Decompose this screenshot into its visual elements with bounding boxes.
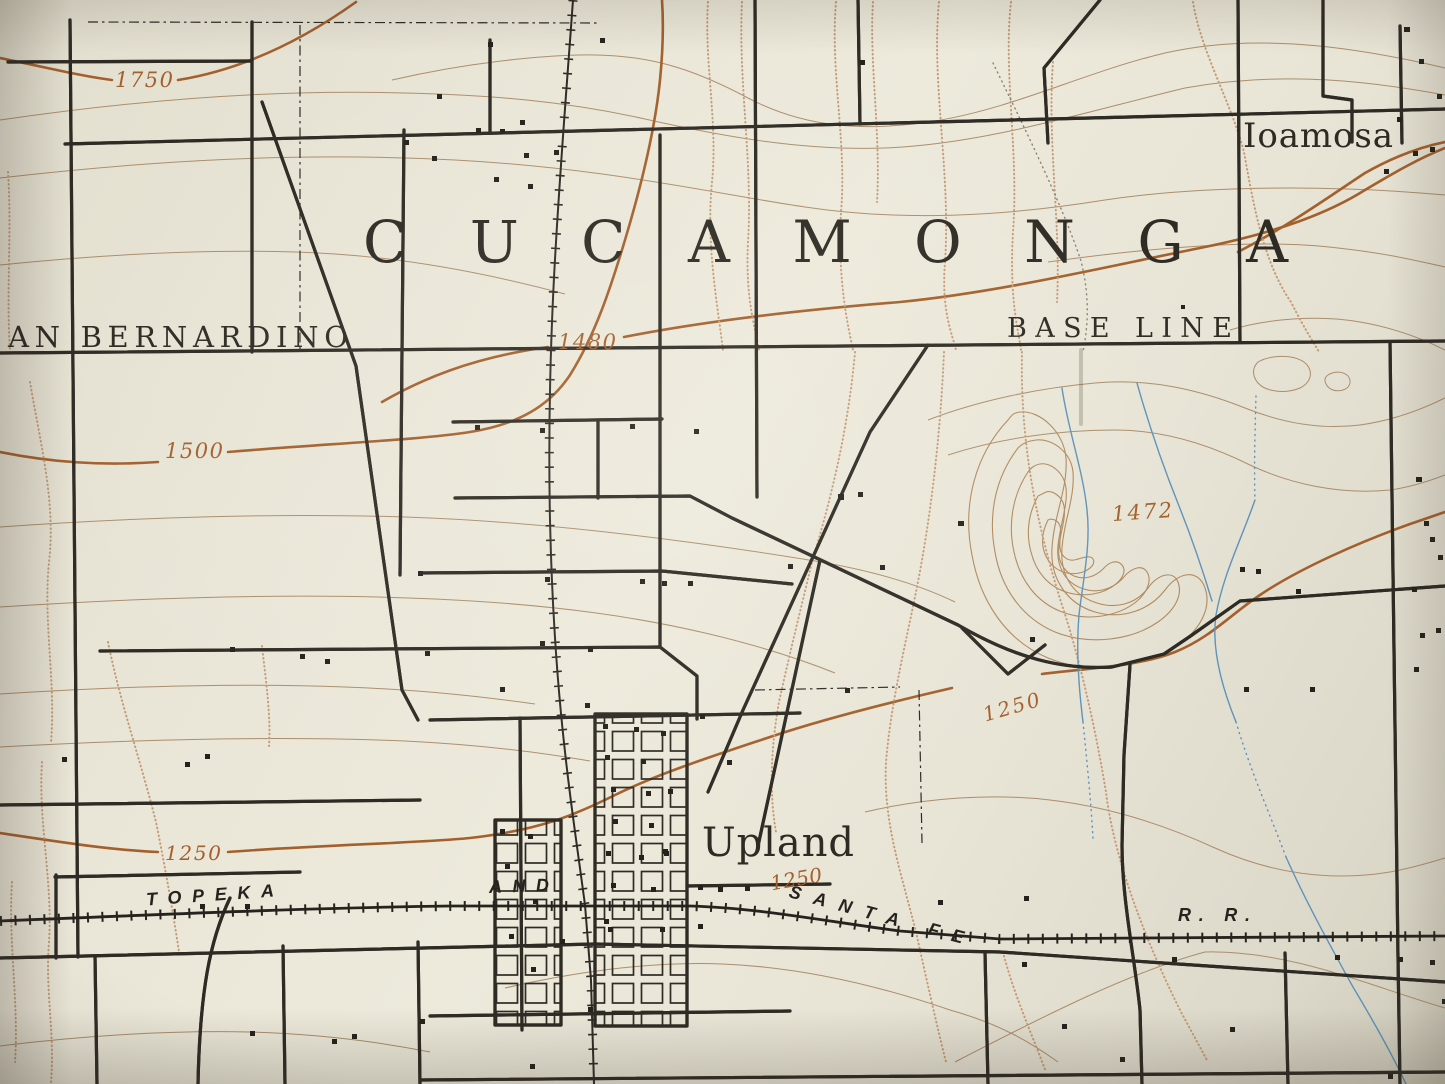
place-label-ioamosa: Ioamosa: [1243, 116, 1393, 156]
place-label-upland: Upland: [702, 820, 854, 866]
township-label-cucamonga: CUCAMONGA: [363, 208, 1289, 276]
contour-label-1750: 1750: [115, 68, 173, 92]
railroad-label-and: AND: [488, 875, 550, 897]
contour-label-1480: 1480: [558, 330, 616, 354]
contour-label-1500: 1500: [165, 439, 223, 463]
contour-label-1472: 1472: [1111, 498, 1173, 526]
photo-smudge: [1079, 348, 1083, 426]
contour-label-1250-mid: 1250: [980, 687, 1043, 726]
map-photo-frame: CUCAMONGA AN BERNARDINO BASE LINE Ioamos…: [0, 0, 1445, 1084]
railroad-label-santa-fe: SANTA FE: [787, 882, 967, 948]
railroad-label-topeka: TOPEKA: [145, 881, 274, 910]
topographic-map: CUCAMONGA AN BERNARDINO BASE LINE Ioamos…: [0, 0, 1445, 1084]
township-label-san-bernardino: AN BERNARDINO: [7, 320, 348, 354]
base-line-label: BASE LINE: [1007, 313, 1232, 344]
railroad-label-rr: R. R.: [1178, 905, 1250, 925]
contour-label-1250-west: 1250: [165, 841, 221, 865]
